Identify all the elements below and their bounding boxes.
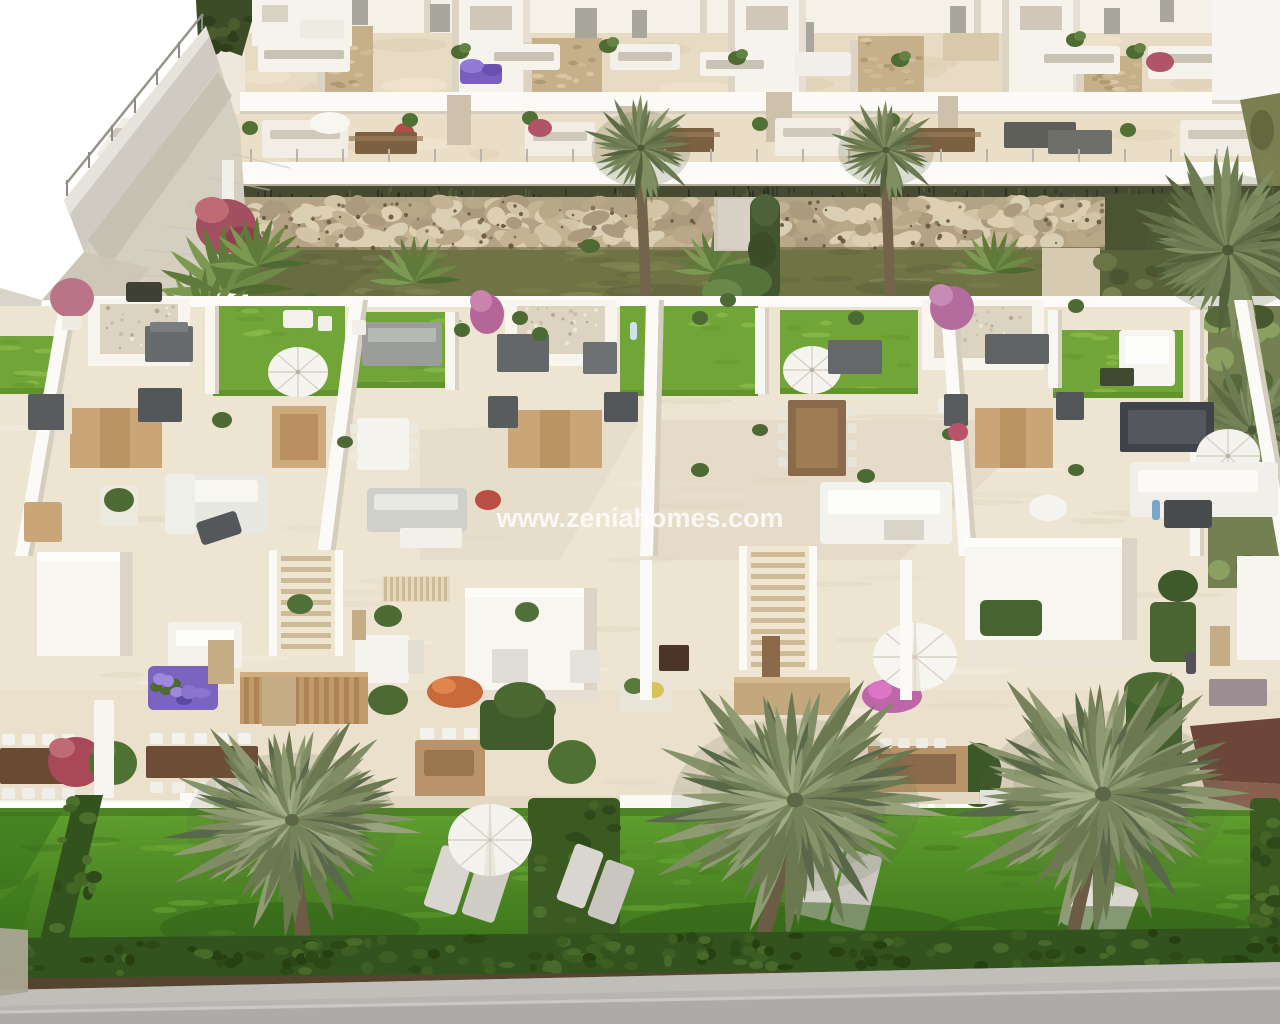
svg-text:www.zeniahomes.com: www.zeniahomes.com bbox=[495, 503, 783, 533]
